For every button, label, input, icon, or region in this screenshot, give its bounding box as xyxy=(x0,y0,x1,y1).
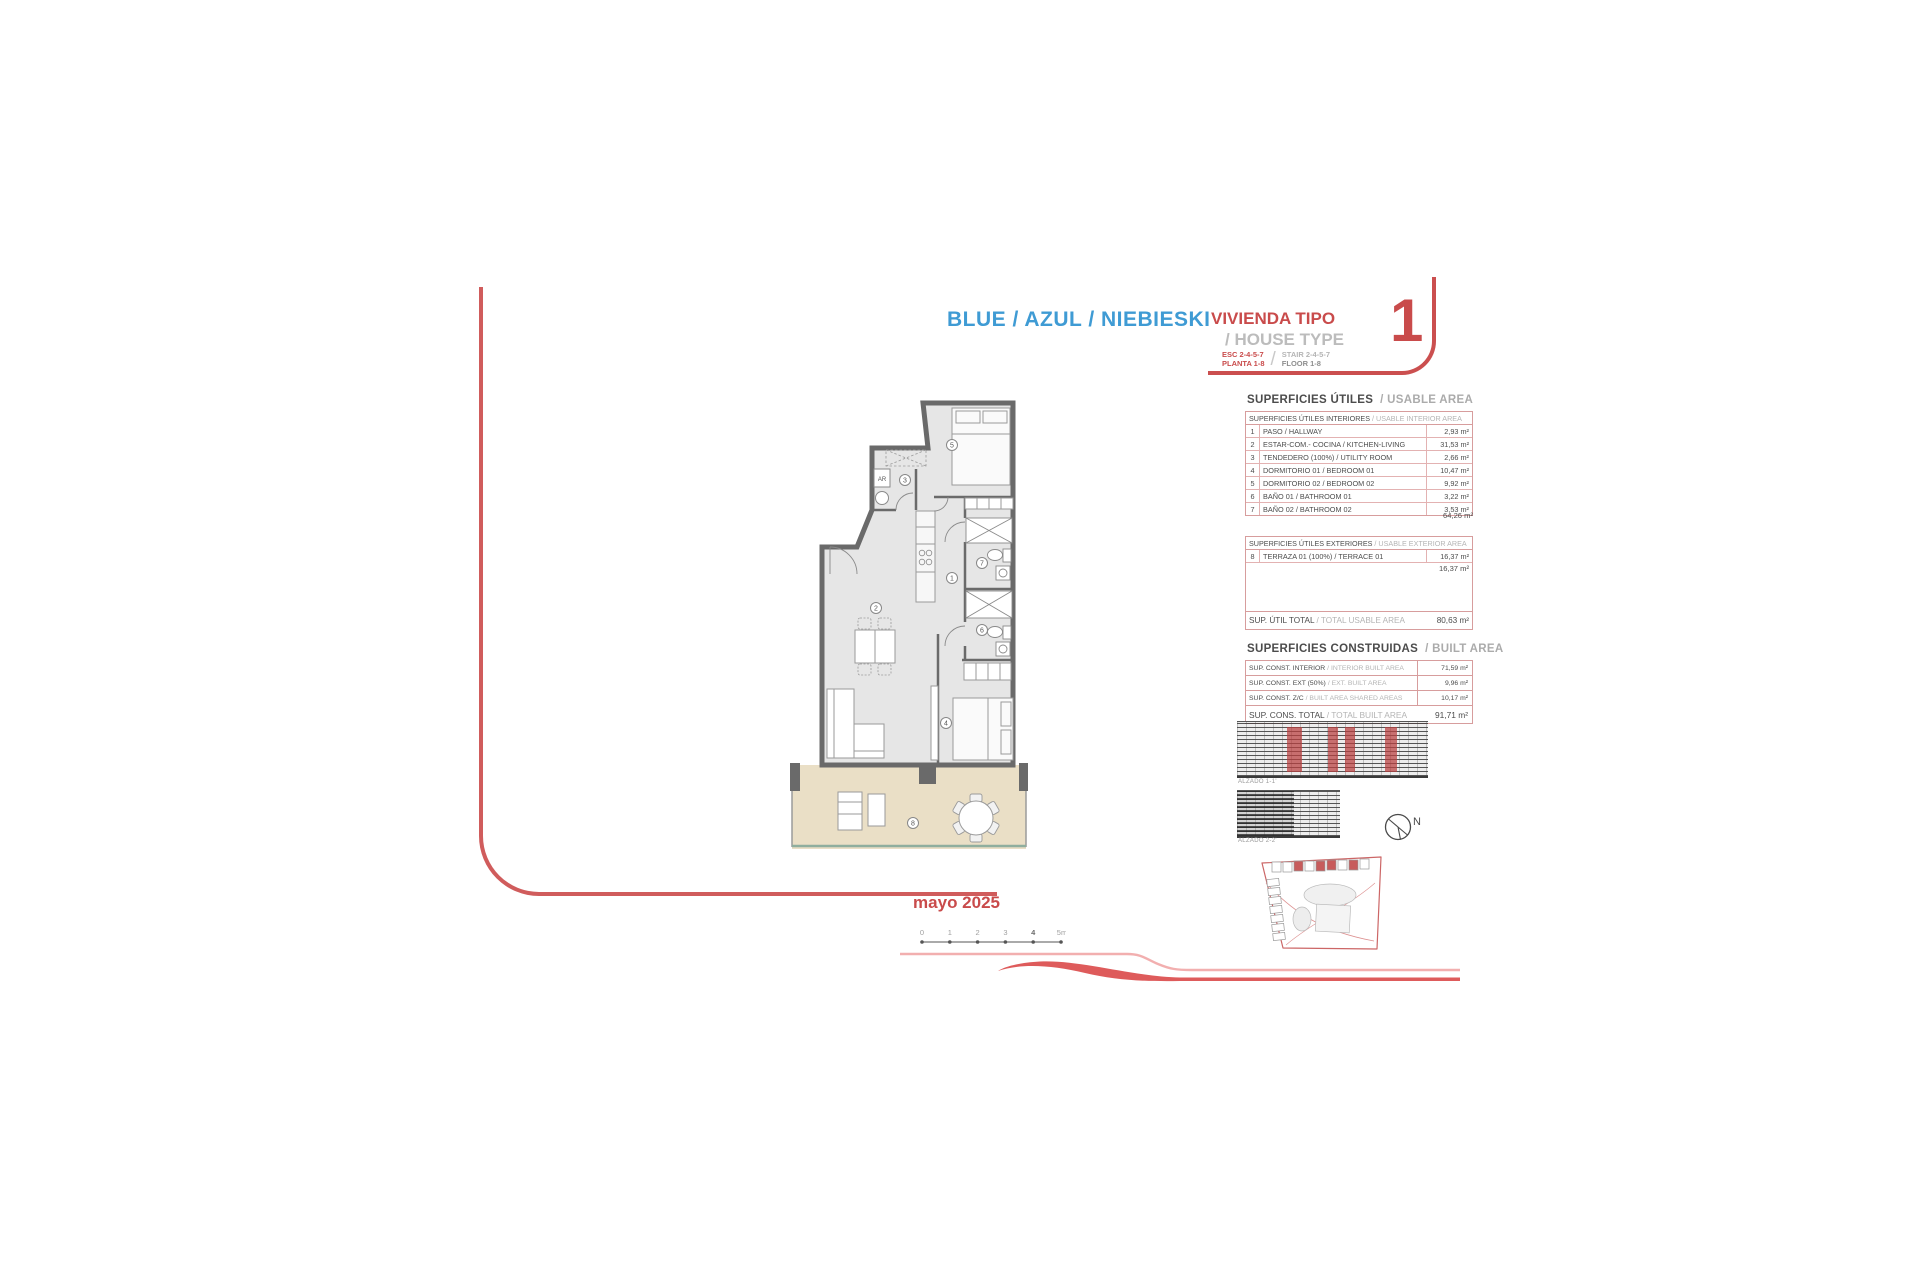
room-number-7: 7 xyxy=(977,558,988,569)
table-row: SUP. CONST. INTERIOR/ INTERIOR BUILT ARE… xyxy=(1246,661,1472,676)
bathroom-02-sink xyxy=(996,566,1010,580)
scale-tick: 1 xyxy=(948,928,952,937)
table-row: 3TENDEDERO (100%) / UTILITY ROOM2,66 m² xyxy=(1246,451,1472,464)
stair-floor-info: ESC 2-4-5-7 PLANTA 1-8 / STAIR 2-4-5-7 F… xyxy=(1222,351,1330,368)
built-area-table: SUP. CONST. INTERIOR/ INTERIOR BUILT ARE… xyxy=(1245,660,1473,724)
usable-exterior-table: SUPERFICIES ÚTILES EXTERIORES / USABLE E… xyxy=(1245,536,1473,630)
bedroom-02-closet xyxy=(965,498,1013,509)
svg-text:1: 1 xyxy=(950,576,954,583)
svg-text:7: 7 xyxy=(980,561,984,568)
usable-total-value: 80,63 m² xyxy=(1437,616,1469,625)
elevation-2-label: ALZADO 2-2' xyxy=(1238,838,1277,844)
usable-area-title: SUPERFICIES ÚTILES / USABLE AREA xyxy=(1247,394,1473,406)
usable-total-row: SUP. ÚTIL TOTAL / TOTAL USABLE AREA 80,6… xyxy=(1246,611,1472,629)
scale-tick: 0 xyxy=(920,928,924,937)
svg-text:5: 5 xyxy=(950,443,954,450)
table-row: SUP. CONST. Z/C/ BUILT AREA SHARED AREAS… xyxy=(1246,691,1472,706)
bathroom-01-sink xyxy=(996,642,1010,656)
floor-label: FLOOR 1-8 xyxy=(1282,360,1330,369)
highlighted-units xyxy=(1345,727,1355,772)
table-row: 2ESTAR-COM.- COCINA / KITCHEN-LIVING31,5… xyxy=(1246,438,1472,451)
house-type-label: / HOUSE TYPE xyxy=(1225,330,1344,350)
vivienda-tipo-label: VIVIENDA TIPO xyxy=(1211,309,1335,329)
plan-sheet: BLUE / AZUL / NIEBIESKI VIVIENDA TIPO / … xyxy=(0,0,1920,1280)
slash-divider: / xyxy=(1271,351,1276,368)
room-number-3: 3 xyxy=(900,475,911,486)
room-number-4: 4 xyxy=(941,718,952,729)
bedroom-02-bed xyxy=(952,408,1010,485)
scale-tick: 3 xyxy=(1003,928,1007,937)
terrace-left-pillar xyxy=(790,763,800,791)
elevation-1 xyxy=(1237,721,1428,778)
table-row: SUP. CONST. EXT (50%)/ EXT. BUILT AREA 9… xyxy=(1246,676,1472,691)
table-row: 5DORMITORIO 02 / BEDROOM 029,92 m² xyxy=(1246,477,1472,490)
page-title: BLUE / AZUL / NIEBIESKI xyxy=(947,308,1211,332)
table-row: 1PASO / HALLWAY2,93 m² xyxy=(1246,425,1472,438)
usable-interior-table: SUPERFICIES ÚTILES INTERIORES / USABLE I… xyxy=(1245,411,1473,516)
red-swoosh-graphic xyxy=(880,947,1470,989)
dining-table xyxy=(855,630,895,663)
exterior-subtotal: 16,37 m² xyxy=(1246,563,1472,573)
scale-tick: 2 xyxy=(976,928,980,937)
exterior-table-header: SUPERFICIES ÚTILES EXTERIORES / USABLE E… xyxy=(1246,537,1472,550)
planta-label: PLANTA 1-8 xyxy=(1222,360,1265,369)
table-row: 4DORMITORIO 01 / BEDROOM 0110,47 m² xyxy=(1246,464,1472,477)
terrace-table xyxy=(952,794,1000,842)
bedroom-01-closet xyxy=(964,663,1011,680)
elevation-2-shaded xyxy=(1237,791,1294,836)
table-row: 6BAÑO 01 / BATHROOM 013,22 m² xyxy=(1246,490,1472,503)
north-compass: N xyxy=(1384,810,1432,846)
room-number-6: 6 xyxy=(977,625,988,636)
room-number-8: 8 xyxy=(908,818,919,829)
interior-subtotal: 64,26 m² xyxy=(1245,511,1476,520)
bathroom-02-shower xyxy=(966,518,1012,543)
svg-text:6: 6 xyxy=(980,628,984,635)
svg-text:4: 4 xyxy=(944,721,948,728)
sliding-door-panel xyxy=(931,686,938,760)
room-number-5: 5 xyxy=(947,440,958,451)
table-row: 8 TERRAZA 01 (100%) / TERRACE 01 16,37 m… xyxy=(1246,550,1472,563)
date-label: mayo 2025 xyxy=(860,893,1000,913)
scale-tick: 4 xyxy=(1031,928,1036,937)
room-number-1: 1 xyxy=(947,573,958,584)
highlighted-units xyxy=(1287,727,1302,772)
floor-plan: gp xyxy=(768,394,1030,856)
highlighted-units xyxy=(1385,727,1397,772)
svg-text:3: 3 xyxy=(903,478,907,485)
washer-label: AR xyxy=(878,477,887,483)
house-type-number: 1 xyxy=(1390,291,1423,351)
elevation-1-label: ALZADO 1-1' xyxy=(1238,779,1277,785)
room-number-2: 2 xyxy=(871,603,882,614)
elevation-2 xyxy=(1237,790,1340,838)
terrace-center-pillar xyxy=(919,763,936,784)
svg-text:8: 8 xyxy=(911,821,915,828)
site-top-buildings xyxy=(1272,859,1369,872)
bedroom-01-bed xyxy=(953,698,1013,760)
svg-text:2: 2 xyxy=(874,606,878,613)
site-plan xyxy=(1258,853,1388,958)
sun-loungers xyxy=(838,792,885,830)
terrace-right-pillar xyxy=(1019,763,1028,791)
built-area-title: SUPERFICIES CONSTRUIDAS / BUILT AREA xyxy=(1247,643,1503,655)
bathroom-01-shower xyxy=(966,591,1012,618)
interior-table-header: SUPERFICIES ÚTILES INTERIORES / USABLE I… xyxy=(1246,412,1472,425)
highlighted-units xyxy=(1328,727,1338,772)
north-label: N xyxy=(1413,816,1421,828)
kitchen-counter xyxy=(916,511,935,602)
scale-tick: 5m xyxy=(1057,928,1066,937)
dryer xyxy=(876,492,889,505)
